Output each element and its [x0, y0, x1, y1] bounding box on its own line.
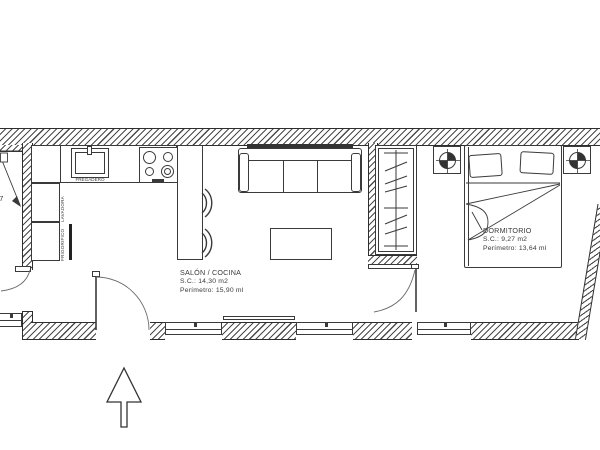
window-salon-2: [296, 322, 353, 335]
bedroom-threshold: [368, 264, 417, 269]
north-arrow-icon: [107, 368, 141, 427]
sofa: [238, 148, 362, 193]
fridge-label: FRIGORIFICO: [60, 222, 65, 261]
bottom-wall-seg-1: [31, 322, 96, 340]
window-salon-1: [165, 322, 222, 335]
ceiling-light-icon: [563, 146, 591, 174]
sofa-armrest-left: [239, 153, 249, 192]
sofa-armrest-right: [351, 153, 361, 192]
window-far-left: [0, 313, 22, 327]
fridge: [31, 222, 60, 261]
burner-3: [145, 167, 154, 176]
room-label-salon: SALÓN / COCINA S.C.: 14,30 m2 Perímetro:…: [180, 268, 244, 295]
dormitorio-name: DORMITORIO: [483, 226, 547, 235]
bedroom-door: [374, 268, 416, 312]
sink-faucet: [87, 146, 92, 155]
burner-1: [143, 151, 156, 164]
burner-2: [163, 152, 173, 162]
counter-divider: [60, 145, 61, 183]
sofa-cushion-divider-2: [317, 161, 318, 192]
dormitorio-perimeter: Perímetro: 13,64 ml: [483, 244, 547, 253]
sofa-back-line: [239, 160, 361, 161]
fridge-door: [69, 224, 72, 260]
salon-perimeter: Perímetro: 15,90 ml: [180, 286, 244, 295]
ceiling-light-icon: [433, 146, 461, 174]
floor-plan: FREGADERO LAVADORA FRIGORIFICO: [0, 0, 600, 450]
washer: [31, 183, 60, 222]
left-room-door-arc: [1, 270, 30, 291]
bottom-wall-seg-3: [222, 322, 296, 340]
peninsula-counter: [177, 145, 203, 260]
salon-area: S.C.: 14,30 m2: [180, 277, 244, 286]
dormitorio-area: S.C.: 9,27 m2: [483, 235, 547, 244]
window-bedroom: [417, 322, 471, 335]
bottom-wall-seg-5: [471, 322, 579, 340]
burner-4-inner: [164, 168, 171, 175]
sink-label: FREGADERO: [71, 177, 109, 182]
right-slanted-wall: [575, 204, 600, 340]
salon-name: SALÓN / COCINA: [180, 268, 244, 277]
bar-stool: [202, 229, 212, 257]
sofa-cushion-divider-1: [283, 161, 284, 192]
bottom-wall-seg-4: [353, 322, 412, 340]
dimension-label: 0,7: [0, 194, 3, 203]
bedroom-door-jamb: [411, 264, 419, 269]
pillow-left: [468, 153, 503, 178]
wardrobe-inner: [378, 148, 414, 252]
window-sill-ledge: [223, 316, 295, 320]
bottom-wall-seg-2: [150, 322, 165, 340]
washer-label: LAVADORA: [60, 184, 65, 222]
entrance-door: [96, 276, 149, 330]
room-label-dormitorio: DORMITORIO S.C.: 9,27 m2 Perímetro: 13,6…: [483, 226, 547, 253]
sink-basin: [75, 152, 105, 174]
left-door-head: [15, 266, 31, 272]
coffee-table: [270, 228, 332, 260]
bar-stool: [202, 189, 212, 217]
pillow-right: [519, 151, 554, 175]
entrance-door-jamb: [92, 271, 100, 277]
stove-handle: [152, 179, 164, 182]
